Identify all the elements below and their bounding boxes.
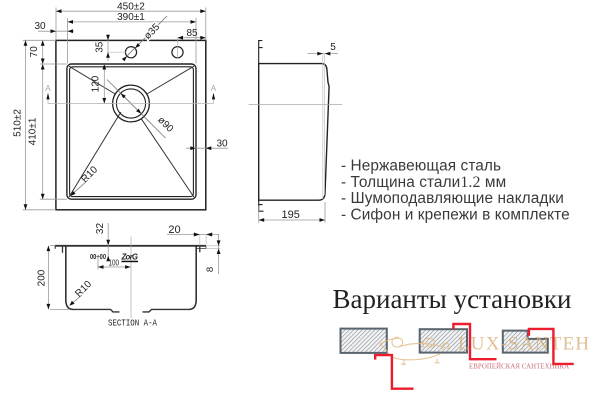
svg-text:R10: R10 <box>79 164 100 185</box>
svg-text:70: 70 <box>29 46 40 58</box>
svg-text:510±2: 510±2 <box>12 109 23 137</box>
svg-text:32: 32 <box>95 223 106 235</box>
svg-text:- Толщина стали1.2 мм: - Толщина стали1.2 мм <box>341 174 506 191</box>
svg-text:A: A <box>211 83 217 93</box>
svg-text:8: 8 <box>205 267 216 272</box>
svg-text:120: 120 <box>90 75 101 92</box>
svg-text:450±2: 450±2 <box>117 1 145 12</box>
svg-text:LUX-SANTEH: LUX-SANTEH <box>458 334 590 355</box>
svg-text:195: 195 <box>282 209 300 221</box>
svg-text:A: A <box>45 83 51 93</box>
svg-text:SECTION A-A: SECTION A-A <box>108 319 158 329</box>
svg-text:200: 200 <box>37 269 48 286</box>
svg-text:ZorG: ZorG <box>121 252 139 261</box>
svg-text:410±1: 410±1 <box>28 117 39 145</box>
svg-text:100: 100 <box>108 258 119 268</box>
svg-text:- Нержавеющая сталь: - Нержавеющая сталь <box>341 157 501 174</box>
svg-text:R10: R10 <box>73 279 94 300</box>
svg-text:30: 30 <box>216 139 228 150</box>
svg-text:35: 35 <box>95 41 106 53</box>
svg-text:5: 5 <box>330 42 336 53</box>
svg-text:- Сифон и крепежи в комплекте: - Сифон и крепежи в комплекте <box>341 206 570 223</box>
svg-text:390±1: 390±1 <box>117 12 145 23</box>
svg-text:85: 85 <box>186 28 198 39</box>
svg-text:30: 30 <box>34 21 46 32</box>
svg-text:ø90: ø90 <box>155 115 175 135</box>
svg-text:ø35: ø35 <box>142 22 162 42</box>
svg-text:Варианты установки: Варианты установки <box>333 284 572 314</box>
svg-text:- Шумоподавляющие накладки: - Шумоподавляющие накладки <box>341 190 564 207</box>
